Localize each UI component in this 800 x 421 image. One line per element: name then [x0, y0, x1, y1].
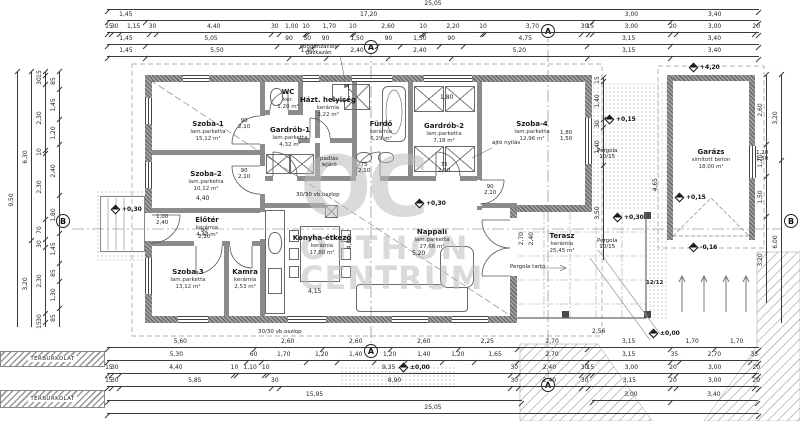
- dim-value: 1,45: [51, 98, 57, 111]
- dim-value: 5,60: [174, 339, 187, 345]
- dim-segment: 1,80: [50, 196, 60, 234]
- level-garage-threshold: -0,16: [690, 244, 717, 251]
- dim-value: 1,20: [315, 352, 328, 358]
- level-terasz: +0,30: [614, 214, 644, 221]
- dim-segment: 1,20: [306, 351, 337, 361]
- dim-segment: 3,50: [594, 166, 604, 260]
- dim-value: 30: [271, 24, 279, 30]
- level-diamond-icon: [675, 193, 685, 203]
- dim-segment: 3,15: [587, 338, 669, 348]
- inner-dim-gardrob2-window: 1,80: [440, 94, 453, 101]
- dim-segment: 2,40: [326, 47, 389, 57]
- opening-furdo-door: 752,10: [358, 162, 370, 175]
- dim-segment: 30: [581, 377, 589, 387]
- dim-value: 25,05: [424, 405, 441, 411]
- dim-segment: 2,60: [757, 75, 767, 145]
- dim-segment: 1,20: [757, 145, 767, 177]
- dim-segment: 2,60: [322, 338, 390, 348]
- dim-value: 8,90: [388, 378, 401, 384]
- level-diamond-icon: [649, 329, 659, 339]
- level-diamond-icon: [689, 63, 699, 73]
- room-label-terasz: Teraszkerámia25,45 m²: [549, 232, 574, 255]
- dim-segment: 85: [50, 72, 60, 90]
- dim-chain-top-0: 25,05: [107, 0, 759, 10]
- dim-segment: 1,30: [50, 282, 60, 309]
- dim-value: 15: [37, 321, 43, 329]
- dim-value: 3,00: [708, 365, 721, 371]
- dim-value: 6,30: [23, 150, 29, 163]
- dim-segment: 3,20: [757, 217, 767, 303]
- level-diamond-icon: [689, 243, 699, 253]
- dim-value: 90: [322, 36, 330, 42]
- dim-value: 1,45: [119, 12, 132, 18]
- dim-value: 30: [37, 240, 43, 248]
- dim-value: 9,50: [9, 193, 15, 206]
- room-label-szoba1: Szoba-1lam.parketta15,12 m²: [190, 120, 225, 143]
- dim-chain-top-2: 15301,15304,40301,00101,70102,60102,2010…: [107, 23, 759, 33]
- dim-segment: 2,25: [458, 338, 517, 348]
- dim-value: 1,40: [349, 352, 362, 358]
- dim-value: 3,40: [708, 12, 721, 18]
- room-label-kamra: Kamrakerámia2,53 m²: [232, 268, 258, 291]
- opening-entrance-door: 1,002,40: [156, 214, 168, 227]
- dim-segment: 3,00: [592, 364, 670, 374]
- dim-value: 1,20: [383, 352, 396, 358]
- inner-dim-terasz: 2,56: [592, 328, 605, 335]
- dim-value: 1,50: [350, 36, 363, 42]
- dim-segment: 90: [277, 35, 301, 45]
- dim-value: 3,50: [595, 206, 601, 219]
- dim-segment: 3,40: [670, 47, 759, 57]
- dim-segment: 60: [246, 351, 262, 361]
- dim-value: 5,20: [513, 48, 526, 54]
- dim-segment: 1,20: [50, 120, 60, 145]
- dim-segment: 1,50: [400, 35, 439, 45]
- level-diamond-icon: [415, 199, 425, 209]
- dim-segment: 90: [377, 35, 401, 45]
- dim-value: 5,30: [170, 352, 183, 358]
- dim-value: 9,35: [382, 365, 395, 371]
- dim-value: 4,40: [169, 365, 182, 371]
- room-label-konyha: Konyha-étkezőkerámia17,80 m²: [293, 234, 351, 257]
- dim-segment: 3,00: [676, 364, 754, 374]
- dim-value: 3,00: [708, 24, 721, 30]
- dim-segment: 1,00: [279, 23, 305, 33]
- dim-value: 2,30: [37, 180, 43, 193]
- dim-segment: 90: [314, 35, 338, 45]
- room-label-hazt: Házt. helyiségkerámia3,22 m²: [300, 96, 356, 119]
- dim-chain-bottom-3: 15304,40101,10109,35302,4030153,00203,00…: [107, 364, 759, 374]
- inner-dim-pergola: 4,65: [652, 178, 659, 191]
- dim-segment: 5,20: [451, 47, 587, 57]
- dim-value: 2,30: [37, 111, 43, 124]
- dim-value: 6,00: [773, 235, 779, 248]
- dim-segment: 20: [754, 364, 759, 374]
- dim-segment: 4,40: [156, 23, 271, 33]
- dim-segment: 2,40: [388, 47, 451, 57]
- dim-segment: 1,10: [236, 364, 265, 374]
- dim-value: 1,10: [243, 365, 256, 371]
- dim-segment: 30: [111, 23, 119, 33]
- opening-szoba2-door: 902,10: [238, 168, 250, 181]
- dim-value: 2,30: [37, 274, 43, 287]
- dim-value: 1,45: [51, 242, 57, 255]
- dim-chain-right-1: 2,601,201,503,20: [757, 75, 767, 303]
- dim-value: 20: [752, 378, 760, 384]
- dim-segment: 1,45: [107, 35, 145, 45]
- dim-value: 1,40: [595, 140, 601, 153]
- dim-value: 2,70: [545, 339, 558, 345]
- dim-segment: 3,15: [587, 351, 669, 361]
- dim-segment: 5,05: [145, 35, 277, 45]
- dim-value: 3,00: [708, 378, 721, 384]
- opening-gardrob2-door: 752,10: [438, 162, 450, 175]
- level-garage: +0,15: [676, 194, 706, 201]
- dim-value: 3,15: [622, 36, 635, 42]
- dim-segment: 2,60: [354, 23, 422, 33]
- level-driveway: ±0,00: [650, 330, 680, 337]
- dim-segment: 3,00: [592, 391, 670, 401]
- dim-segment: 3,00: [592, 23, 670, 33]
- dim-segment: 1,50: [337, 35, 376, 45]
- dim-value: 30: [271, 378, 279, 384]
- dim-segment: 30: [271, 23, 279, 33]
- dim-value: 90: [285, 36, 293, 42]
- dim-value: 30: [581, 378, 589, 384]
- dim-value: 15,95: [306, 392, 323, 398]
- level-diamond-icon: [605, 115, 615, 125]
- dim-value: 4,75: [519, 36, 532, 42]
- inner-dim-terasz-door-1: 2,70: [518, 232, 525, 245]
- dim-segment: 3,70: [484, 23, 580, 33]
- dim-value: 1,70: [685, 339, 698, 345]
- dim-segment: 1,50: [757, 177, 767, 217]
- dim-segment: 15,95: [107, 391, 522, 401]
- dim-segment: 30: [111, 364, 119, 374]
- dim-value: 4,40: [207, 24, 220, 30]
- dim-value: 2,40: [350, 48, 363, 54]
- dim-value: 35: [671, 352, 679, 358]
- dim-chain-bottom-6: 25,05: [107, 404, 759, 414]
- dim-chain-right-mid: 151,40301,403,50: [594, 78, 604, 260]
- dim-value: 2,40: [413, 48, 426, 54]
- dim-value: 90: [385, 36, 393, 42]
- callout-column-bottom: 30/30 vb.oszlop: [258, 329, 302, 335]
- dim-segment: 1,70: [261, 351, 306, 361]
- dim-segment: 1,70: [714, 338, 759, 348]
- dim-chain-left-3: 15302,30102,3070302,303015: [36, 72, 46, 327]
- dim-value: 20: [752, 24, 760, 30]
- dim-segment: 70: [36, 220, 46, 240]
- dim-segment: 30: [510, 377, 518, 387]
- dim-segment: 4,75: [463, 35, 587, 45]
- opening-szoba1-door: 902,10: [238, 118, 250, 131]
- opening-szoba4-door: 902,10: [484, 184, 496, 197]
- dim-segment: 30: [510, 364, 518, 374]
- dim-segment: 5,30: [107, 351, 246, 361]
- dim-value: 5,50: [210, 48, 223, 54]
- level-diamond-icon: [613, 213, 623, 223]
- dim-value: 20: [752, 365, 760, 371]
- dim-segment: 1,20: [374, 351, 405, 361]
- dim-value: 60: [250, 352, 258, 358]
- room-label-furdo: Fürdőkerámia6,29 m²: [370, 120, 393, 143]
- dim-value: 1,20: [51, 126, 57, 139]
- dim-segment: 1,40: [594, 128, 604, 166]
- dim-segment: 2,70: [517, 338, 588, 348]
- dim-segment: 1,40: [594, 82, 604, 120]
- dim-value: 35: [750, 352, 758, 358]
- dim-chain-left-4: 851,451,202,401,801,45851,3085: [50, 72, 60, 327]
- dim-value: 30: [37, 77, 43, 85]
- dim-value: 1,45: [119, 48, 132, 54]
- dim-segment: 20: [754, 23, 759, 33]
- dim-value: 2,40: [51, 164, 57, 177]
- dim-segment: 9,50: [8, 72, 18, 327]
- dim-value: 3,70: [526, 24, 539, 30]
- opening-szoba4-window: 1,801,50: [560, 130, 572, 143]
- inner-dim-szoba1: 4,40: [196, 195, 209, 202]
- dim-value: 1,00: [285, 24, 298, 30]
- dim-value: 85: [51, 269, 57, 277]
- room-label-gardrob2: Gardrób-2lam.parketta7,18 m²: [424, 122, 464, 145]
- dim-value: 1,30: [51, 289, 57, 302]
- dim-segment: 2,60: [254, 338, 322, 348]
- dim-segment: 20: [754, 377, 759, 387]
- dim-segment: 30: [271, 377, 279, 387]
- dim-segment: 1,40: [289, 47, 326, 57]
- dim-value: 3,00: [625, 365, 638, 371]
- dim-value: 1,45: [119, 36, 132, 42]
- dim-segment: 90: [439, 35, 463, 45]
- dim-value: 3,15: [622, 48, 635, 54]
- dim-chain-bottom-1: 5,602,602,602,602,252,703,151,701,70: [107, 338, 759, 348]
- dim-value: 2,60: [281, 339, 294, 345]
- dim-segment: 1,70: [307, 23, 351, 33]
- level-nappali: +0,30: [416, 200, 446, 207]
- dim-segment: 1,65: [474, 351, 517, 361]
- dim-segment: 8,90: [279, 377, 511, 387]
- dim-value: 25,05: [424, 1, 441, 7]
- dim-value: 5,85: [188, 378, 201, 384]
- dim-value: 1,40: [301, 48, 314, 54]
- dim-value: 3,00: [625, 24, 638, 30]
- dim-segment: 3,00: [592, 11, 670, 21]
- dim-segment: 3,40: [670, 11, 758, 21]
- dim-chain-bottom-5b: 3,003,40: [592, 391, 758, 401]
- dim-value: 1,50: [413, 36, 426, 42]
- dim-segment: 2,70: [679, 351, 750, 361]
- dim-segment: 85: [50, 309, 60, 327]
- dim-segment: 3,40: [670, 35, 759, 45]
- room-label-szoba2: Szoba-2lam.parketta10,12 m²: [188, 170, 223, 193]
- dim-value: 2,20: [446, 24, 459, 30]
- dim-value: 2,60: [381, 24, 394, 30]
- dim-value: 90: [447, 36, 455, 42]
- dim-segment: 35: [670, 351, 679, 361]
- dim-segment: 30: [111, 377, 119, 387]
- dim-chain-bottom-4: 15305,85308,90302,40303,15203,0020: [107, 377, 759, 387]
- dim-segment: 1,40: [405, 351, 442, 361]
- dim-segment: 1,15: [119, 23, 149, 33]
- inner-dim-nappali: 5,20: [412, 250, 425, 257]
- level-diamond-icon: [111, 205, 121, 215]
- dim-value: 30: [510, 365, 518, 371]
- dim-value: 3,00: [625, 12, 638, 18]
- boiler-mark: M: [344, 84, 349, 90]
- dim-segment: 1,70: [670, 338, 715, 348]
- room-label-garazs: Garázssimított beton18,00 m²: [692, 148, 731, 171]
- dim-segment: 2,30: [36, 154, 46, 220]
- dim-segment: 85: [50, 264, 60, 282]
- inner-dim-terasz-door-2: 2,40: [528, 232, 535, 245]
- callout-beam-size: 12/12: [646, 280, 663, 286]
- dim-value: 17,20: [360, 12, 377, 18]
- room-label-szoba3: Szoba-3lam.parketta13,12 m²: [170, 268, 205, 291]
- dim-segment: 3,00: [676, 377, 754, 387]
- dim-chain-bottom-5a: 15,95: [107, 391, 522, 401]
- dim-value: 30: [149, 24, 157, 30]
- callout-door-opening: ajtó nyílás: [492, 140, 520, 146]
- dim-value: 1,70: [277, 352, 290, 358]
- room-label-nappali: Nappalilam.parketta27,66 m²: [414, 228, 449, 251]
- dim-segment: 3,20: [22, 241, 32, 327]
- dim-segment: 3,15: [587, 47, 669, 57]
- dim-value: 50: [303, 36, 311, 42]
- dim-value: 30: [595, 120, 601, 128]
- dim-value: 2,40: [543, 378, 556, 384]
- dim-value: 3,00: [624, 392, 637, 398]
- level-pergola: +0,15: [606, 116, 636, 123]
- dim-value: 3,15: [623, 378, 636, 384]
- dim-value: 2,70: [708, 352, 721, 358]
- dim-value: 3,20: [23, 277, 29, 290]
- dim-segment: 1,45: [50, 90, 60, 120]
- dim-value: 2,70: [545, 352, 558, 358]
- dim-value: 30: [111, 378, 119, 384]
- dim-value: 85: [51, 77, 57, 85]
- dim-segment: 5,85: [119, 377, 271, 387]
- dim-value: 3,40: [707, 392, 720, 398]
- dim-value: 30: [111, 365, 119, 371]
- dim-segment: 30: [149, 23, 157, 33]
- dim-segment: 2,40: [50, 145, 60, 195]
- dim-value: 1,50: [758, 190, 764, 203]
- dim-segment: 15: [36, 323, 46, 327]
- dim-value: 2,60: [417, 339, 430, 345]
- dim-segment: 2,70: [517, 351, 588, 361]
- dim-chain-left-2: 6,303,20: [22, 72, 32, 327]
- dim-segment: 2,40: [518, 364, 580, 374]
- dim-segment: 9,35: [267, 364, 510, 374]
- callout-attic-hatch: padláslejáró: [320, 156, 338, 169]
- dim-segment: 6,00: [772, 161, 782, 323]
- dim-value: 3,40: [708, 36, 721, 42]
- dim-chain-right-2: 3,206,00: [772, 75, 782, 323]
- dim-chain-top-4: 1,455,501,402,402,405,203,153,40: [107, 47, 759, 57]
- inner-dim-konyha: 4,15: [308, 288, 321, 295]
- dim-value: 3,20: [773, 111, 779, 124]
- dim-value: 2,60: [349, 339, 362, 345]
- dim-segment: 5,60: [107, 338, 254, 348]
- dim-segment: 1,40: [337, 351, 374, 361]
- dim-value: 1,65: [488, 352, 501, 358]
- dim-segment: 1,45: [107, 47, 145, 57]
- inner-dim-konyha-v: 4,80: [346, 236, 353, 249]
- level-ridge: +4,20: [690, 64, 720, 71]
- dim-value: 5,05: [204, 36, 217, 42]
- dim-segment: 25,05: [107, 0, 759, 10]
- dim-segment: 1,45: [107, 11, 145, 21]
- dim-value: 2,60: [758, 103, 764, 116]
- dim-value: 70: [37, 226, 43, 234]
- dim-value: 3,15: [622, 339, 635, 345]
- dim-value: 2,25: [481, 339, 494, 345]
- dim-segment: 3,40: [670, 391, 758, 401]
- dim-value: 30: [111, 24, 119, 30]
- dim-segment: 35: [750, 351, 759, 361]
- opening-szoba3-door: 902,10: [198, 228, 210, 241]
- callout-pergola-beam: Pergola tartó: [510, 264, 545, 270]
- dim-segment: 5,50: [145, 47, 289, 57]
- dim-segment: 3,15: [588, 377, 670, 387]
- dim-chain-top-1: 1,4517,203,003,40: [107, 11, 759, 21]
- dim-value: 1,70: [730, 339, 743, 345]
- callout-column: 30/30 vb.oszlop: [296, 192, 340, 198]
- dim-segment: 2,30: [36, 85, 46, 151]
- dim-chain-bottom-2: 5,30601,701,201,401,201,401,201,652,703,…: [107, 351, 759, 361]
- dim-segment: 2,60: [390, 338, 458, 348]
- dim-segment: 25,05: [107, 404, 759, 414]
- dim-value: 1,40: [417, 352, 430, 358]
- dim-segment: 3,20: [772, 75, 782, 161]
- level-porch: +0,30: [112, 206, 142, 213]
- dim-value: 1,15: [127, 24, 140, 30]
- room-label-wc: WCker.1,20 m²: [277, 88, 299, 111]
- dim-segment: 50: [301, 35, 314, 45]
- dim-segment: 4,40: [119, 364, 234, 374]
- dim-value: 2,40: [543, 365, 556, 371]
- dim-segment: 6,30: [22, 72, 32, 241]
- dim-value: 30: [510, 378, 518, 384]
- room-label-gardrob1: Gardrób-1lam.parketta4,32 m²: [270, 126, 310, 149]
- dim-segment: 3,15: [587, 35, 669, 45]
- dim-value: 1,80: [51, 208, 57, 221]
- dim-segment: 1,20: [442, 351, 473, 361]
- dim-value: 1,40: [595, 94, 601, 107]
- dim-segment: 2,30: [36, 248, 46, 314]
- dim-segment: 2,20: [424, 23, 481, 33]
- dim-value: 85: [51, 314, 57, 322]
- dim-chain-top-3: 1,455,059050901,50901,50904,753,153,40: [107, 35, 759, 45]
- dim-segment: 1,45: [50, 234, 60, 264]
- dim-segment: 2,40: [518, 377, 580, 387]
- dim-chain-left-1: 9,50: [8, 72, 18, 327]
- floor-plan-canvas: TÉRBURKOLAT TÉRBURKOLAT: [0, 0, 800, 421]
- dim-value: 1,20: [758, 154, 764, 167]
- dim-value: 3,15: [622, 352, 635, 358]
- dim-value: 1,70: [323, 24, 336, 30]
- dim-value: 3,20: [758, 253, 764, 266]
- dim-segment: 17,20: [145, 11, 593, 21]
- dim-value: 3,40: [708, 48, 721, 54]
- section-marker-b-right: B: [784, 214, 798, 228]
- dim-value: 1,20: [451, 352, 464, 358]
- dim-segment: 3,00: [676, 23, 754, 33]
